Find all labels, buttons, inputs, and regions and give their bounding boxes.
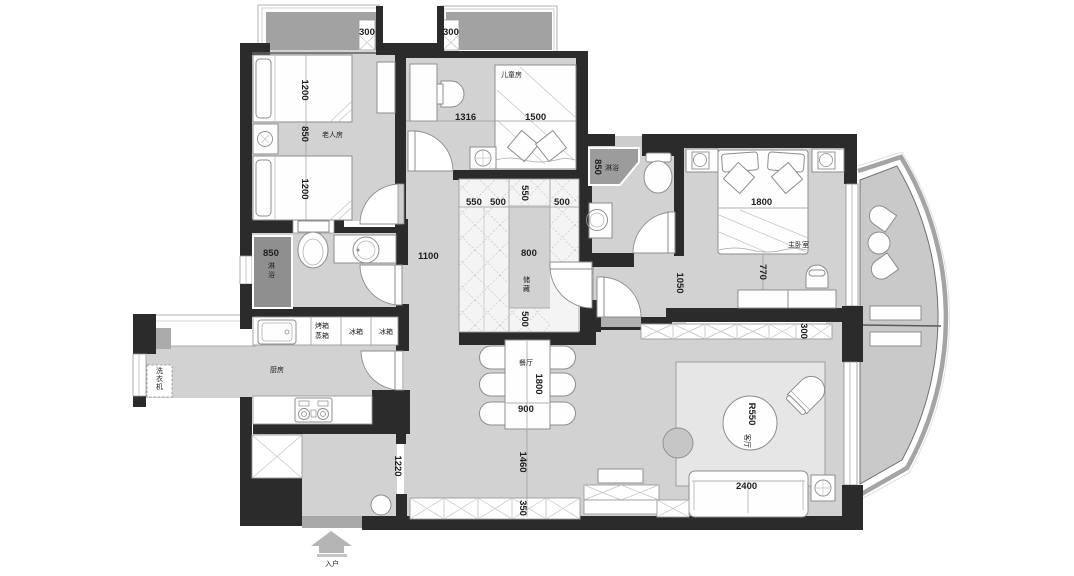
svg-text:客厅: 客厅 <box>743 434 752 448</box>
svg-text:770: 770 <box>757 264 768 280</box>
svg-text:900: 900 <box>518 404 534 415</box>
svg-text:300: 300 <box>443 27 459 38</box>
svg-text:1800: 1800 <box>533 373 544 394</box>
svg-text:老人房: 老人房 <box>322 130 343 139</box>
svg-text:500: 500 <box>519 311 530 327</box>
svg-text:蒸箱: 蒸箱 <box>315 331 329 340</box>
svg-text:800: 800 <box>521 248 537 259</box>
svg-text:1316: 1316 <box>455 112 476 123</box>
svg-text:儿童房: 儿童房 <box>501 70 522 79</box>
svg-text:入户: 入户 <box>325 559 339 568</box>
svg-text:500: 500 <box>490 197 506 208</box>
svg-text:2400: 2400 <box>736 481 757 492</box>
svg-text:1800: 1800 <box>751 197 772 208</box>
svg-text:烤箱: 烤箱 <box>315 321 329 330</box>
svg-text:厨房: 厨房 <box>270 365 284 374</box>
svg-text:冰箱: 冰箱 <box>349 327 363 336</box>
svg-text:1460: 1460 <box>517 451 528 472</box>
svg-text:1200: 1200 <box>299 79 310 100</box>
svg-text:淋浴: 淋浴 <box>605 163 619 172</box>
svg-text:1050: 1050 <box>674 272 685 293</box>
svg-text:850: 850 <box>592 159 603 175</box>
svg-text:1220: 1220 <box>392 455 403 476</box>
svg-text:550: 550 <box>466 197 482 208</box>
svg-text:850: 850 <box>299 126 310 142</box>
svg-text:冰箱: 冰箱 <box>379 327 393 336</box>
svg-text:300: 300 <box>798 323 809 339</box>
svg-text:1500: 1500 <box>525 112 546 123</box>
svg-text:洗衣机: 洗衣机 <box>156 366 163 391</box>
svg-text:850: 850 <box>263 248 279 259</box>
svg-text:550: 550 <box>519 185 530 201</box>
svg-text:350: 350 <box>517 500 528 516</box>
svg-text:主卧室: 主卧室 <box>788 240 809 249</box>
svg-text:500: 500 <box>554 197 570 208</box>
svg-text:R550: R550 <box>746 403 757 426</box>
svg-text:餐厅: 餐厅 <box>519 358 533 367</box>
svg-text:1100: 1100 <box>418 251 439 262</box>
svg-text:300: 300 <box>359 27 375 38</box>
svg-text:1200: 1200 <box>299 178 310 199</box>
